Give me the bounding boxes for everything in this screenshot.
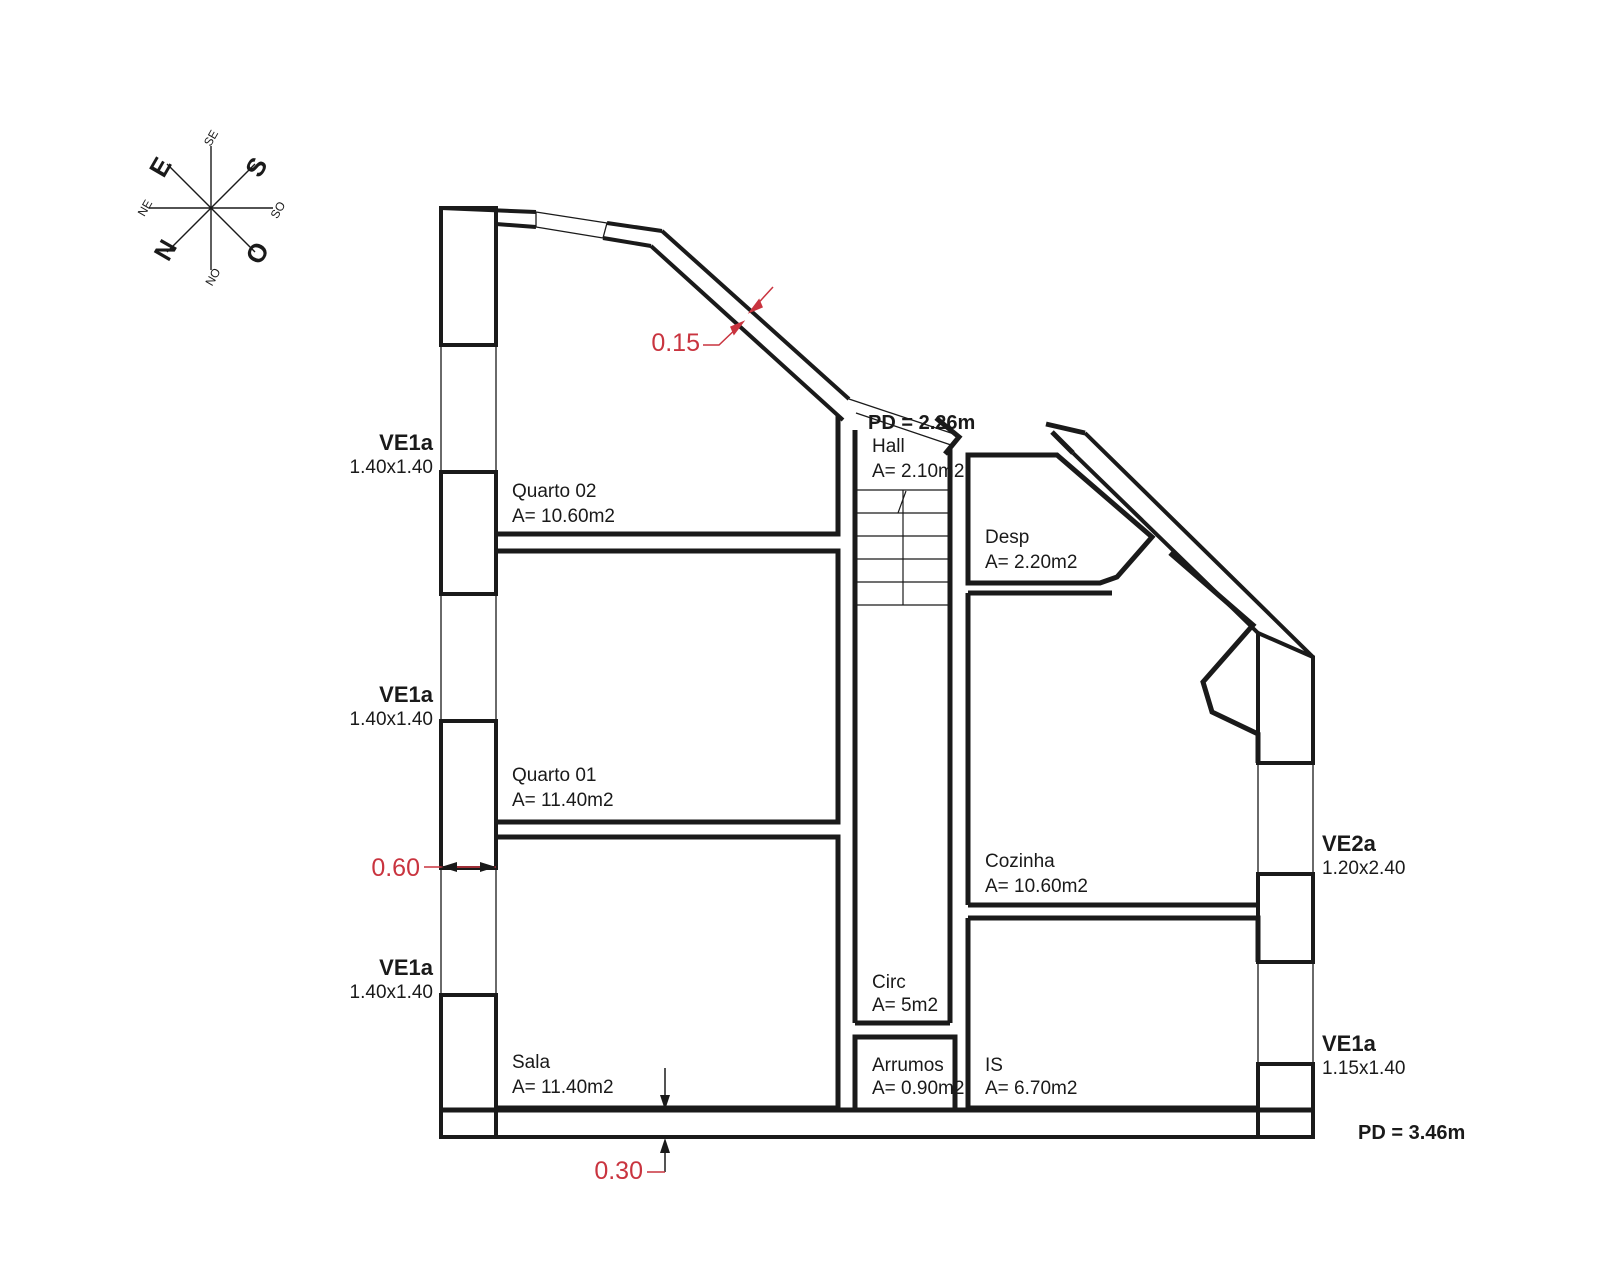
compass-label-s: S <box>239 152 274 182</box>
room-label-quarto02: Quarto 02 <box>512 481 597 502</box>
room-area-cozinha: A= 10.60m2 <box>985 876 1088 897</box>
room-area-sala: A= 11.40m2 <box>512 1077 614 1098</box>
window-right1-code: VE2a <box>1322 831 1377 856</box>
top-wall-inner-face <box>496 224 536 227</box>
dimension-annotations: 0.15 0.60 0.30 <box>371 287 773 1185</box>
room-area-desp: A= 2.20m2 <box>985 552 1077 573</box>
window-top-outer-line <box>536 212 607 223</box>
ceiling-height-upper: PD = 2.26m <box>868 412 975 434</box>
window-left3-code: VE1a <box>379 955 434 980</box>
window-top-inner-line <box>536 227 603 238</box>
right-wall-corner-block <box>1258 1064 1313 1137</box>
left-wall-pier-2 <box>441 472 496 594</box>
compass-label-so: SO <box>268 199 289 221</box>
window-left1-code: VE1a <box>379 430 434 455</box>
stairs <box>855 490 950 605</box>
window-right1-size: 1.20x2.40 <box>1322 858 1405 879</box>
window-left2-code: VE1a <box>379 682 434 707</box>
diagonal-wall1-outer-face <box>662 231 849 399</box>
right-wall-pier <box>1258 874 1313 962</box>
compass-label-se: SE <box>201 128 221 149</box>
room-area-is: A= 6.70m2 <box>985 1078 1077 1099</box>
window-left3-size: 1.40x1.40 <box>350 982 433 1003</box>
window-openings <box>441 212 1313 1064</box>
compass-label-ne: NE <box>135 197 155 218</box>
diagonal-wall2-outer-face <box>1085 433 1313 657</box>
room-area-arrumos: A= 0.90m2 <box>872 1078 964 1099</box>
dimension-arrow-030-bottom <box>660 1138 670 1153</box>
dimension-wall-diagonal: 0.15 <box>651 329 700 357</box>
entrance-door-jamb-right-cap <box>1046 424 1085 433</box>
dimension-wall-left: 0.60 <box>371 854 420 882</box>
dimension-wall-bottom: 0.30 <box>594 1157 643 1185</box>
room-area-quarto01: A= 11.40m2 <box>512 790 614 811</box>
floor-plan-page: E S N O SE NE SO NO <box>0 0 1600 1280</box>
floor-plan-drawing: E S N O SE NE SO NO <box>0 0 1600 1280</box>
dimension-arrow-015-outer <box>750 300 762 312</box>
ceiling-height-lower: PD = 3.46m <box>1358 1122 1465 1144</box>
dimension-arrow-060-left <box>441 862 457 872</box>
dimension-arrow-060-right <box>480 862 496 872</box>
compass-label-no: NO <box>202 266 223 289</box>
room-area-circ: A= 5m2 <box>872 995 938 1016</box>
left-wall-pier-1 <box>441 208 496 345</box>
room-label-cozinha: Cozinha <box>985 851 1055 872</box>
room-cozinha-zigzag-wall <box>1170 553 1258 763</box>
right-wall-upper-segment <box>1258 633 1313 763</box>
window-left2-size: 1.40x1.40 <box>350 709 433 730</box>
stair-break-mark <box>898 491 906 513</box>
room-label-is: IS <box>985 1055 1003 1076</box>
room-label-desp: Desp <box>985 527 1029 548</box>
entrance-door-jamb-right <box>1052 432 1073 453</box>
room-area-quarto02: A= 10.60m2 <box>512 506 615 527</box>
window-left1-size: 1.40x1.40 <box>350 457 433 478</box>
room-label-sala: Sala <box>512 1052 550 1073</box>
room-label-circ: Circ <box>872 972 906 993</box>
left-wall-pier-4 <box>441 995 496 1137</box>
top-wall-outer-face <box>441 208 536 212</box>
compass-label-e: E <box>143 152 178 182</box>
window-right2-size: 1.15x1.40 <box>1322 1058 1405 1079</box>
room-label-quarto01: Quarto 01 <box>512 765 597 786</box>
window-top-right-cap <box>603 223 607 238</box>
top-corner-outer-face <box>607 223 662 231</box>
left-wall-pier-3 <box>441 721 496 868</box>
room-label-hall: Hall <box>872 436 905 457</box>
top-corner-inner-face <box>603 238 651 246</box>
compass-label-n: N <box>148 234 183 265</box>
room-label-arrumos: Arrumos <box>872 1055 944 1076</box>
room-area-hall: A= 2.10m2 <box>872 461 964 482</box>
room-is-top-wall <box>968 918 1258 962</box>
window-right2-code: VE1a <box>1322 1031 1377 1056</box>
